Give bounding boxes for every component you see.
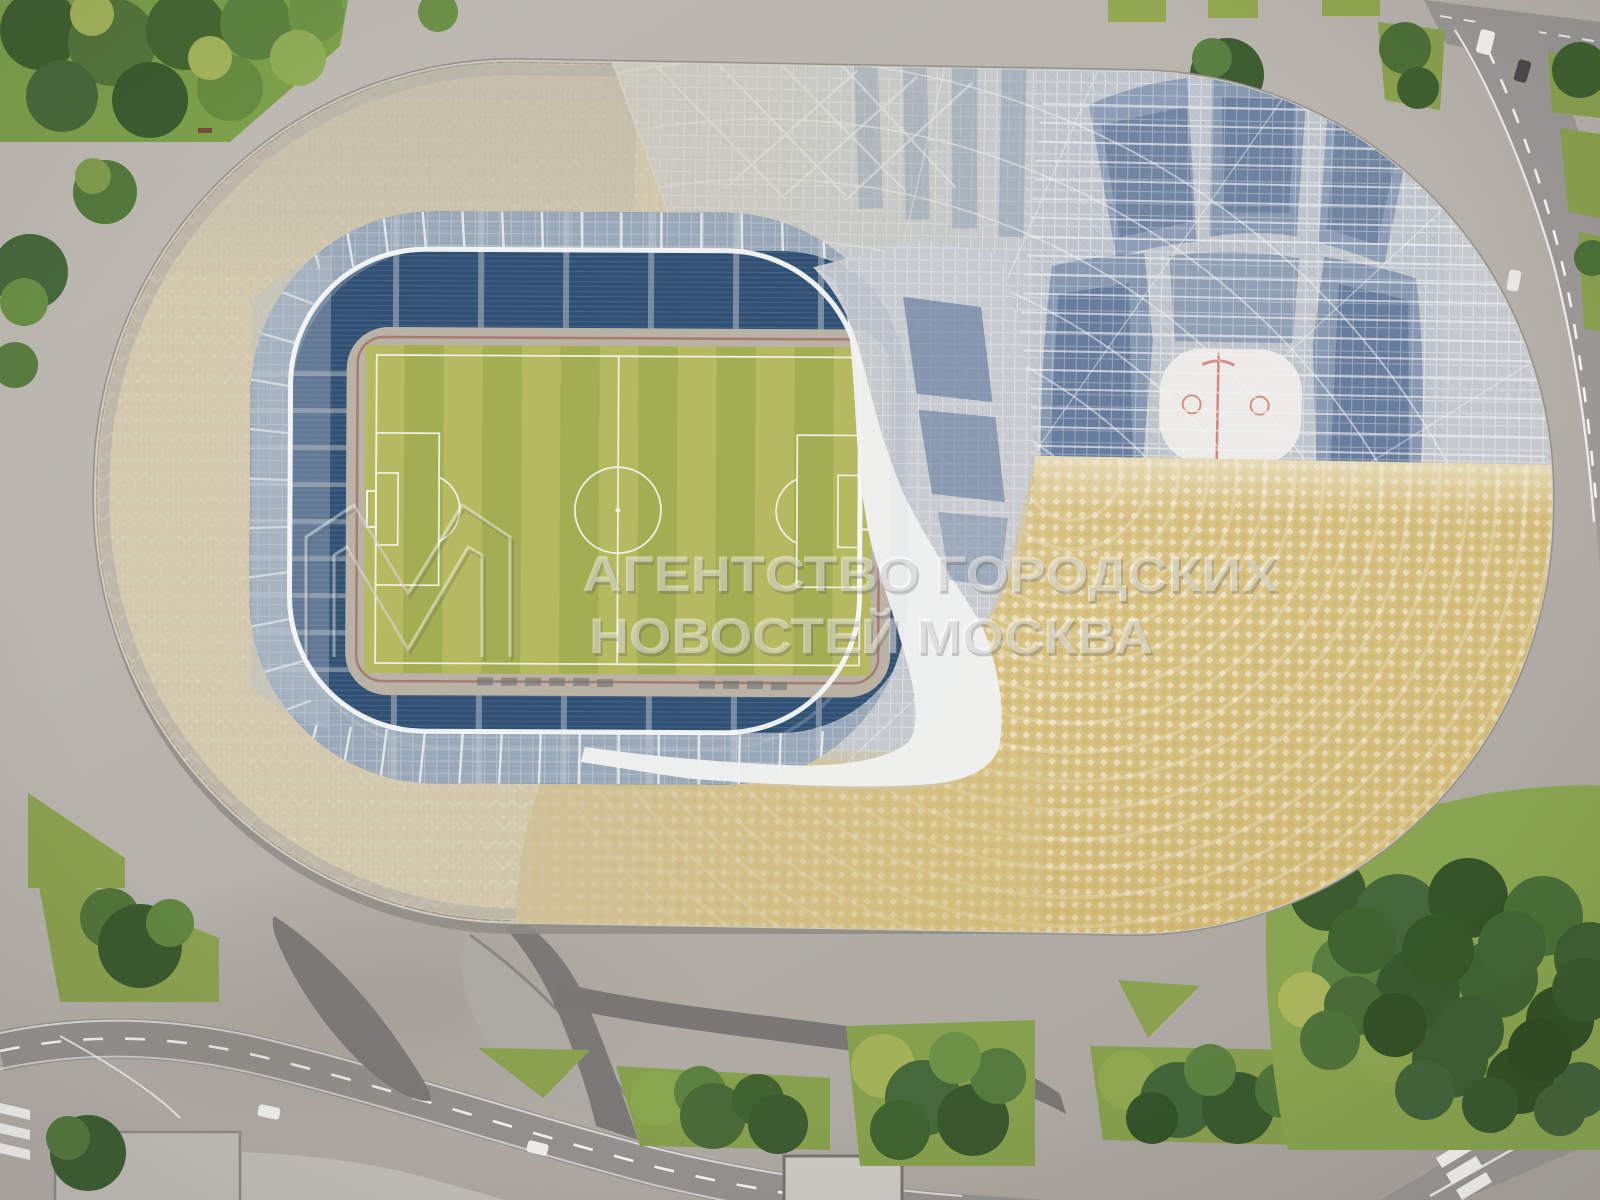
svg-text:АГЕНТСТВО ГОРОДСКИХ: АГЕНТСТВО ГОРОДСКИХ — [582, 546, 1278, 602]
svg-text:НОВОСТЕЙ МОСКВА: НОВОСТЕЙ МОСКВА — [589, 607, 1153, 664]
